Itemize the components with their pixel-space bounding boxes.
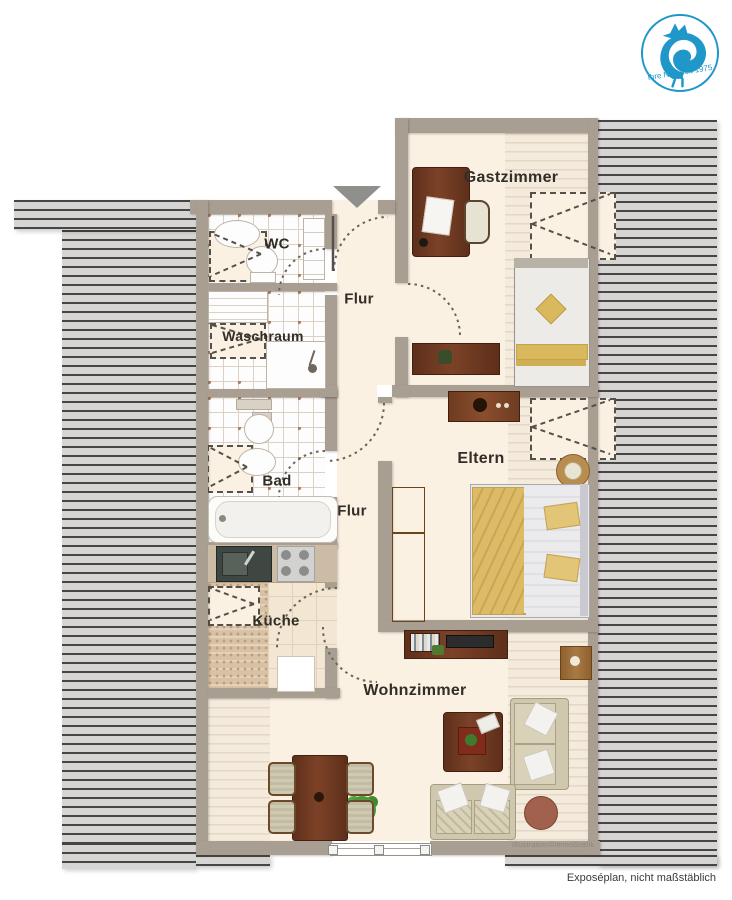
disclaimer-text: Exposéplan, nicht maßstäblich	[567, 872, 716, 884]
room-label-kueche: Küche	[252, 613, 299, 630]
door-arc-gastzimmer	[408, 284, 460, 336]
door-arc-wc	[279, 249, 325, 295]
illustrator-watermark: Illustration©ImmoGrafik	[512, 842, 594, 849]
skylight-triangle-gastzimmer	[532, 194, 610, 254]
entrance-arrow-icon	[333, 186, 381, 208]
skylight-triangle-bad	[209, 447, 247, 487]
door-arc-eltern	[326, 403, 384, 461]
room-label-flur-oben: Flur	[344, 291, 374, 308]
room-label-gastzimmer: Gastzimmer	[464, 169, 559, 187]
skylight-triangle-eltern	[532, 400, 610, 454]
room-label-wc: WC	[264, 236, 290, 253]
room-label-waschraum: Waschraum	[222, 328, 304, 344]
room-label-eltern: Eltern	[457, 450, 504, 468]
floorplan: Gastzimmer WC Flur Waschraum Eltern Bad …	[0, 0, 732, 900]
room-label-wohnzimmer: Wohnzimmer	[363, 682, 466, 700]
door-arc-wohnzimmer	[323, 627, 377, 682]
door-swing-and-skylight-overlay	[0, 0, 732, 900]
door-arc-entrance	[334, 217, 388, 271]
skylight-triangle-kueche	[210, 588, 254, 620]
room-label-flur-unten: Flur	[337, 503, 367, 520]
room-label-bad: Bad	[262, 473, 291, 490]
skylight-triangle-wc	[211, 233, 261, 276]
agency-logo: Ihre Nr.1 seit 1975	[641, 14, 719, 92]
